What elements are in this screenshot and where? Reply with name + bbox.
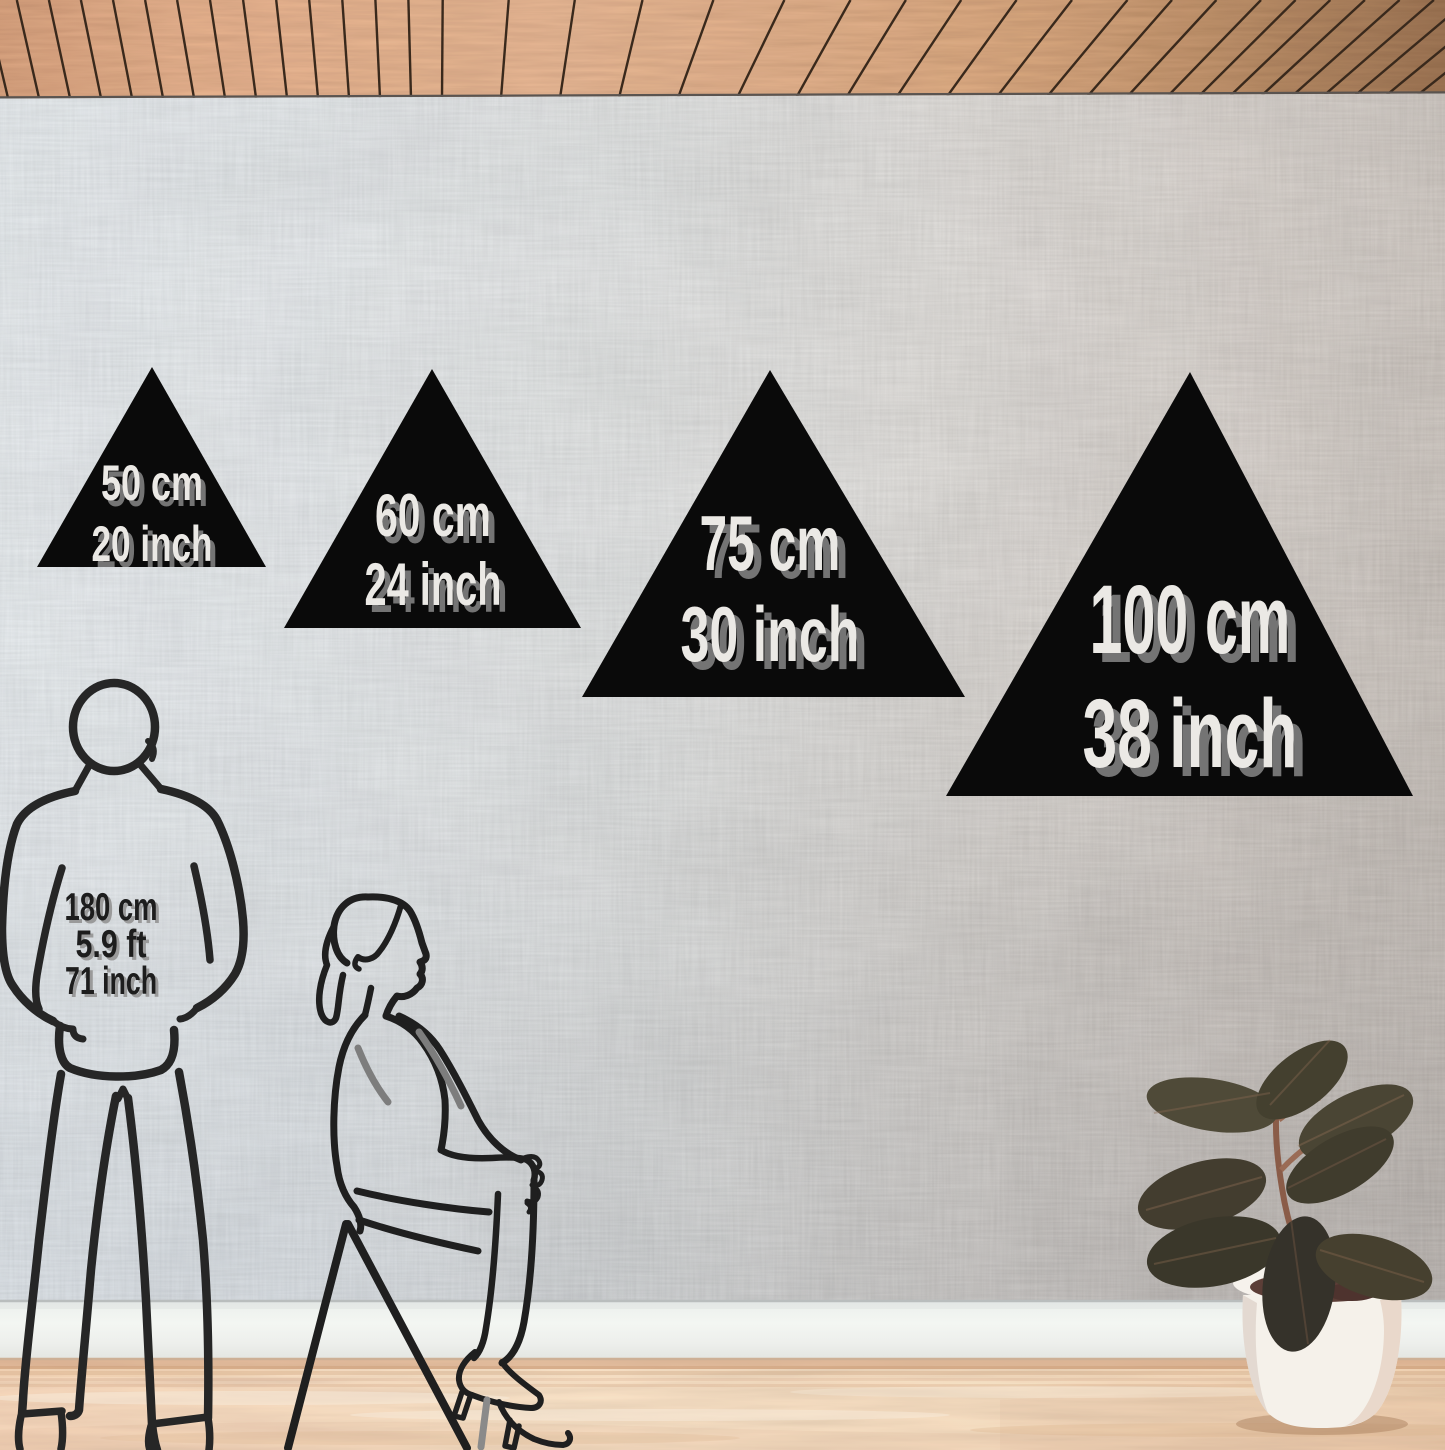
svg-text:20 inch: 20 inch <box>92 516 213 572</box>
svg-text:50 cm: 50 cm <box>101 455 203 511</box>
svg-text:100 cm: 100 cm <box>1090 565 1291 674</box>
svg-text:30 inch: 30 inch <box>681 590 860 678</box>
svg-text:75 cm: 75 cm <box>700 499 841 587</box>
svg-text:24 inch: 24 inch <box>365 551 502 618</box>
svg-text:60 cm: 60 cm <box>375 482 491 549</box>
svg-text:38 inch: 38 inch <box>1083 679 1298 788</box>
svg-text:71 inch: 71 inch <box>65 960 157 1003</box>
